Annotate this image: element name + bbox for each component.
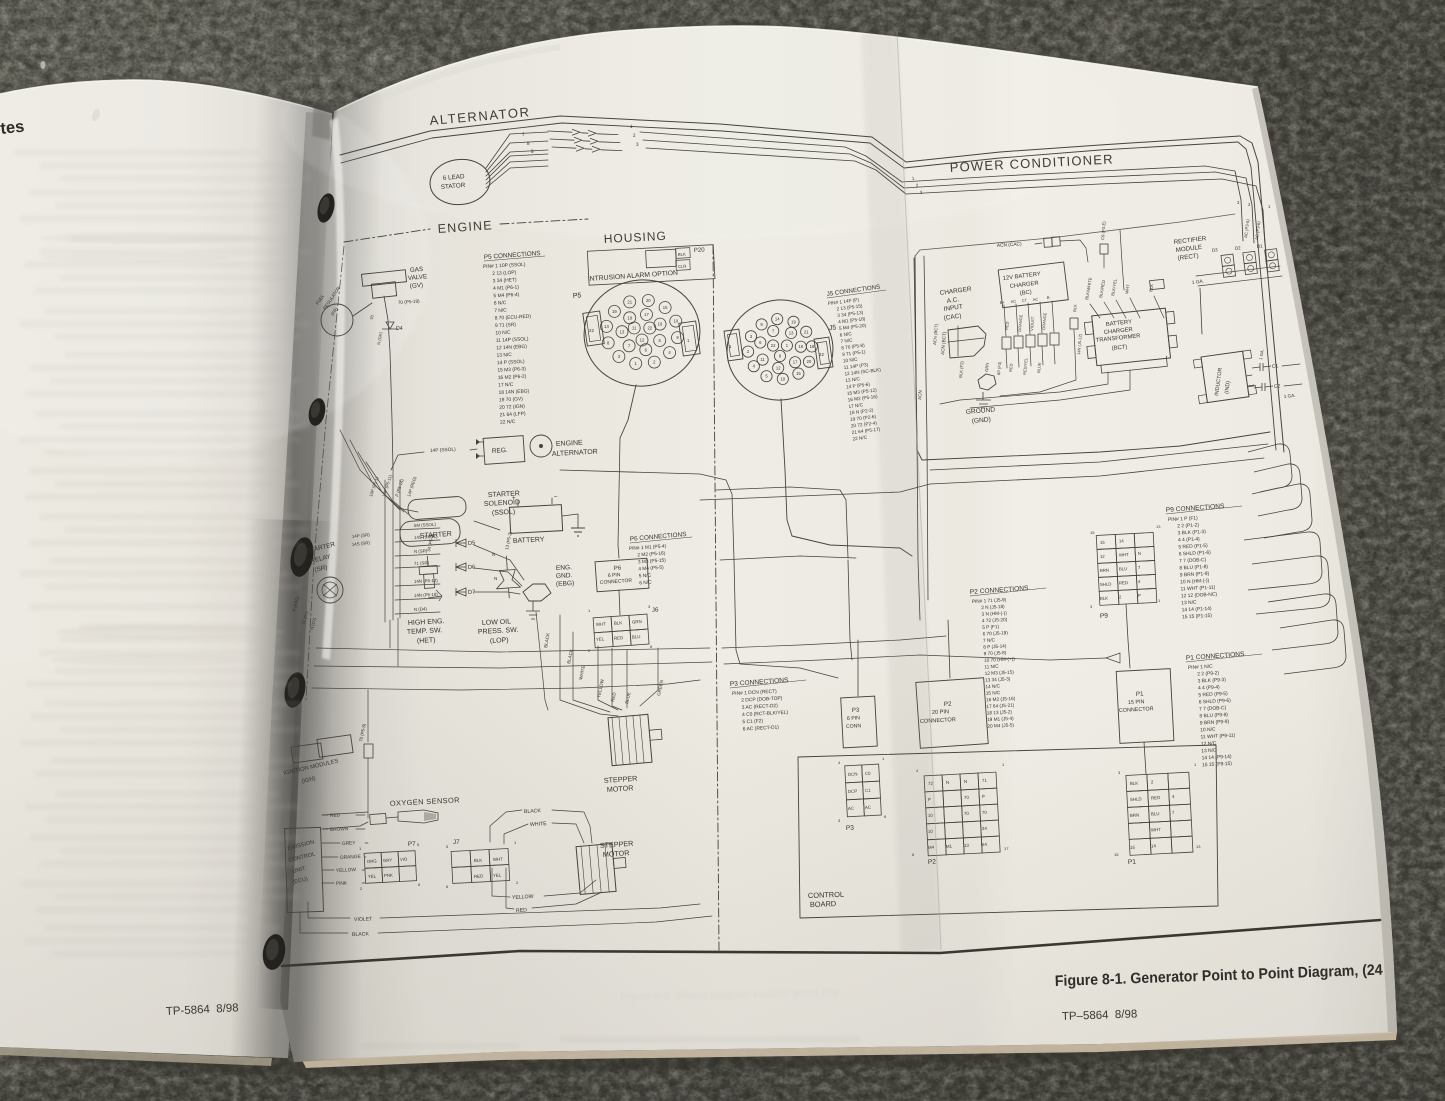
svg-text:9 71 (SR): 9 71 (SR)	[495, 322, 517, 329]
svg-text:VIOLET: VIOLET	[354, 916, 373, 923]
svg-text:C1: C1	[1272, 363, 1279, 370]
svg-text:WHT: WHT	[1151, 827, 1162, 833]
svg-text:GAS: GAS	[410, 266, 424, 274]
svg-text:10: 10	[780, 376, 785, 381]
svg-text:BLK: BLK	[474, 858, 483, 863]
svg-text:AC: AC	[865, 805, 871, 810]
svg-text:AC: AC	[848, 806, 854, 811]
svg-text:BLU: BLU	[1119, 566, 1128, 571]
svg-text:YEL: YEL	[368, 874, 377, 879]
svg-text:AC: AC	[1033, 297, 1039, 302]
svg-text:15: 15	[1114, 852, 1119, 857]
svg-text:13: 13	[964, 843, 970, 848]
svg-text:P5: P5	[573, 292, 582, 300]
svg-text:15: 15	[1100, 540, 1106, 545]
svg-text:D7: D7	[468, 590, 476, 596]
svg-text:C2: C2	[1274, 383, 1281, 390]
svg-text:J5: J5	[829, 324, 837, 332]
svg-text:P2: P2	[944, 701, 952, 708]
svg-text:70: 70	[964, 811, 970, 816]
svg-text:5 N/C: 5 N/C	[639, 572, 652, 579]
svg-text:14 N/C: 14 N/C	[985, 683, 1000, 689]
svg-text:BLU: BLU	[1151, 811, 1160, 816]
svg-text:SHLD: SHLD	[1100, 581, 1112, 587]
svg-text:BLK: BLK	[1100, 596, 1109, 601]
svg-text:14: 14	[1119, 538, 1125, 543]
svg-text:P1: P1	[1128, 859, 1137, 866]
svg-text:ENGINE: ENGINE	[556, 440, 583, 448]
svg-text:22: 22	[771, 343, 776, 348]
svg-text:tes: tes	[0, 118, 25, 138]
svg-text:D5: D5	[468, 541, 476, 547]
svg-text:N: N	[964, 779, 967, 784]
svg-text:C0: C0	[865, 771, 871, 776]
svg-text:N: N	[1138, 551, 1141, 556]
svg-text:14: 14	[604, 324, 609, 329]
svg-text:ACN: ACN	[917, 390, 923, 400]
svg-text:YEL: YEL	[493, 873, 502, 878]
svg-text:DCP: DCP	[848, 789, 858, 794]
svg-text:GREY: GREY	[342, 840, 357, 847]
svg-text:M1: M1	[946, 844, 953, 849]
svg-text:RED: RED	[1008, 363, 1014, 372]
svg-text:13: 13	[789, 330, 794, 335]
svg-text:13: 13	[1156, 524, 1161, 529]
svg-text:GRN: GRN	[632, 619, 642, 625]
svg-text:+: +	[512, 496, 516, 502]
svg-text:ENG.: ENG.	[556, 564, 573, 572]
svg-text:(SSOL): (SSOL)	[492, 509, 516, 517]
svg-text:WHT: WHT	[493, 856, 504, 862]
svg-text:RED: RED	[1151, 795, 1161, 800]
svg-text:21: 21	[627, 300, 632, 305]
svg-text:15: 15	[1090, 530, 1095, 535]
svg-text:(GV): (GV)	[410, 282, 424, 290]
svg-text:15 PIN: 15 PIN	[1128, 699, 1145, 706]
svg-text:70: 70	[964, 795, 970, 800]
svg-text:BLK: BLK	[1072, 304, 1078, 312]
svg-text:6 N/C: 6 N/C	[494, 300, 507, 307]
svg-text:D3: D3	[1212, 247, 1219, 253]
svg-text:BLK: BLK	[1130, 781, 1139, 786]
svg-text:6 PIN: 6 PIN	[847, 715, 861, 722]
svg-text:12: 12	[1100, 554, 1106, 559]
svg-text:CONN: CONN	[846, 723, 862, 730]
svg-text:17: 17	[644, 312, 649, 317]
svg-text:15: 15	[663, 305, 668, 310]
svg-text:P3: P3	[852, 708, 860, 714]
svg-text:MOTOR: MOTOR	[607, 783, 634, 794]
svg-text:70: 70	[982, 810, 988, 815]
svg-text:22: 22	[589, 328, 594, 333]
svg-text:14: 14	[775, 317, 780, 322]
svg-text:RED: RED	[614, 635, 624, 641]
svg-text:RED: RED	[1004, 321, 1010, 330]
svg-text:11 N/C: 11 N/C	[984, 664, 999, 670]
svg-text:19: 19	[791, 319, 796, 324]
svg-text:15: 15	[1130, 845, 1136, 850]
svg-text:12 N/C: 12 N/C	[1201, 741, 1217, 748]
svg-text:P7: P7	[408, 841, 417, 848]
svg-text:10 N/C: 10 N/C	[1200, 727, 1216, 734]
svg-text:D1: D1	[1257, 243, 1264, 249]
svg-text:BLU: BLU	[632, 634, 641, 640]
svg-text:D4: D4	[396, 326, 403, 332]
svg-text:10 N/C: 10 N/C	[495, 330, 511, 337]
svg-text:BOARD: BOARD	[810, 899, 837, 909]
svg-text:BLUE: BLUE	[1036, 362, 1042, 373]
svg-text:BRN: BRN	[1100, 568, 1109, 573]
svg-text:YEL: YEL	[596, 636, 605, 642]
svg-text:REG.: REG.	[492, 447, 509, 455]
svg-text:P: P	[982, 794, 985, 799]
svg-text:13: 13	[1196, 844, 1201, 849]
svg-text:17: 17	[793, 360, 798, 365]
svg-text:C1: C1	[865, 788, 871, 793]
svg-text:18: 18	[627, 315, 632, 320]
svg-text:WHT: WHT	[596, 621, 607, 627]
svg-text:P6: P6	[614, 565, 622, 572]
svg-text:4 4 (P9-4): 4 4 (P9-4)	[1198, 684, 1220, 691]
svg-text:YELLOW: YELLOW	[336, 867, 357, 874]
svg-text:15 N/C: 15 N/C	[986, 690, 1001, 696]
svg-text:71: 71	[982, 778, 988, 783]
svg-text:BLACK: BLACK	[524, 808, 542, 815]
svg-text:J7: J7	[453, 839, 461, 846]
svg-text:64: 64	[982, 842, 988, 847]
svg-text:18: 18	[798, 344, 803, 349]
svg-text:RED: RED	[1119, 580, 1128, 585]
svg-text:VIO: VIO	[400, 857, 408, 862]
svg-text:19 70 (GV): 19 70 (GV)	[499, 396, 524, 403]
svg-text:WHT: WHT	[1119, 552, 1129, 558]
svg-text:14: 14	[1151, 843, 1157, 848]
svg-text:GRN: GRN	[984, 362, 990, 372]
svg-text:BRN: BRN	[1130, 813, 1140, 818]
svg-text:22: 22	[647, 326, 652, 331]
svg-text:P: P	[1138, 593, 1141, 598]
svg-text:17: 17	[1004, 846, 1009, 851]
svg-text:(EBG): (EBG)	[556, 580, 575, 588]
svg-text:2 2 (P9-2): 2 2 (P9-2)	[1197, 670, 1219, 677]
svg-text:(HET): (HET)	[417, 637, 436, 645]
svg-text:22: 22	[819, 352, 824, 357]
svg-text:2 2 (P1-2): 2 2 (P1-2)	[1177, 522, 1199, 529]
svg-text:P20: P20	[694, 247, 706, 254]
svg-text:J6: J6	[652, 607, 660, 614]
svg-text:PINK: PINK	[336, 880, 348, 887]
svg-text:DCN: DCN	[848, 772, 858, 777]
svg-text:BLK: BLK	[614, 620, 623, 626]
svg-text:17 N/C: 17 N/C	[498, 382, 514, 389]
svg-text:7 N/C: 7 N/C	[494, 307, 507, 314]
svg-text:3 34 (HET): 3 34 (HET)	[493, 277, 518, 284]
svg-text:AC: AC	[1011, 299, 1017, 304]
svg-text:PNK: PNK	[384, 873, 393, 878]
svg-text:ORANGE: ORANGE	[340, 854, 361, 861]
svg-text:16: 16	[810, 344, 815, 349]
svg-text:YELLOW: YELLOW	[512, 894, 534, 901]
svg-text:13 N/C: 13 N/C	[1201, 748, 1217, 755]
svg-text:11: 11	[632, 326, 637, 331]
svg-text:P1: P1	[1136, 691, 1144, 698]
svg-text:RED: RED	[330, 812, 341, 819]
svg-text:12: 12	[776, 365, 781, 370]
svg-text:RED: RED	[474, 874, 484, 879]
svg-text:BLACK: BLACK	[352, 931, 370, 938]
svg-text:21: 21	[804, 329, 809, 334]
svg-text:19: 19	[612, 309, 617, 314]
svg-text:N: N	[494, 576, 497, 581]
svg-text:P3: P3	[846, 825, 855, 832]
svg-text:GRY: GRY	[383, 858, 393, 863]
svg-text:BLK: BLK	[678, 252, 686, 257]
svg-text:15: 15	[796, 371, 801, 376]
svg-text:20: 20	[807, 359, 812, 364]
svg-text:SHLD: SHLD	[1130, 796, 1142, 802]
svg-text:5 P (F1): 5 P (F1)	[982, 624, 1000, 630]
svg-text:11: 11	[760, 357, 765, 362]
svg-text:GND.: GND.	[556, 572, 573, 580]
svg-text:16: 16	[658, 322, 663, 327]
svg-text:34: 34	[982, 826, 988, 831]
svg-text:ORG: ORG	[367, 858, 378, 864]
svg-text:CLR: CLR	[678, 264, 687, 269]
svg-text:4 4 (P1-4): 4 4 (P1-4)	[1178, 536, 1200, 543]
svg-text:7 N/C: 7 N/C	[983, 637, 996, 643]
svg-text:13: 13	[620, 329, 625, 334]
svg-text:D2: D2	[1235, 245, 1242, 251]
svg-text:N: N	[492, 552, 495, 557]
svg-text:22 N/C: 22 N/C	[500, 419, 516, 426]
svg-text:N (D4): N (D4)	[414, 606, 428, 612]
svg-text:MOTOR: MOTOR	[603, 848, 630, 859]
svg-text:20: 20	[646, 298, 651, 303]
svg-text:WHITE: WHITE	[530, 821, 548, 828]
svg-text:6 N/C: 6 N/C	[639, 579, 652, 586]
svg-text:P9: P9	[1100, 613, 1109, 620]
svg-text:10: 10	[673, 319, 678, 324]
svg-text:5 C1 (F2): 5 C1 (F2)	[742, 718, 763, 725]
svg-text:13 N/C: 13 N/C	[496, 352, 512, 359]
svg-text:13 N/C: 13 N/C	[1181, 600, 1197, 607]
svg-text:20 PIN: 20 PIN	[932, 709, 949, 716]
svg-text:N: N	[946, 780, 949, 785]
svg-text:12: 12	[640, 338, 645, 343]
svg-text:(LOP): (LOP)	[490, 637, 509, 645]
